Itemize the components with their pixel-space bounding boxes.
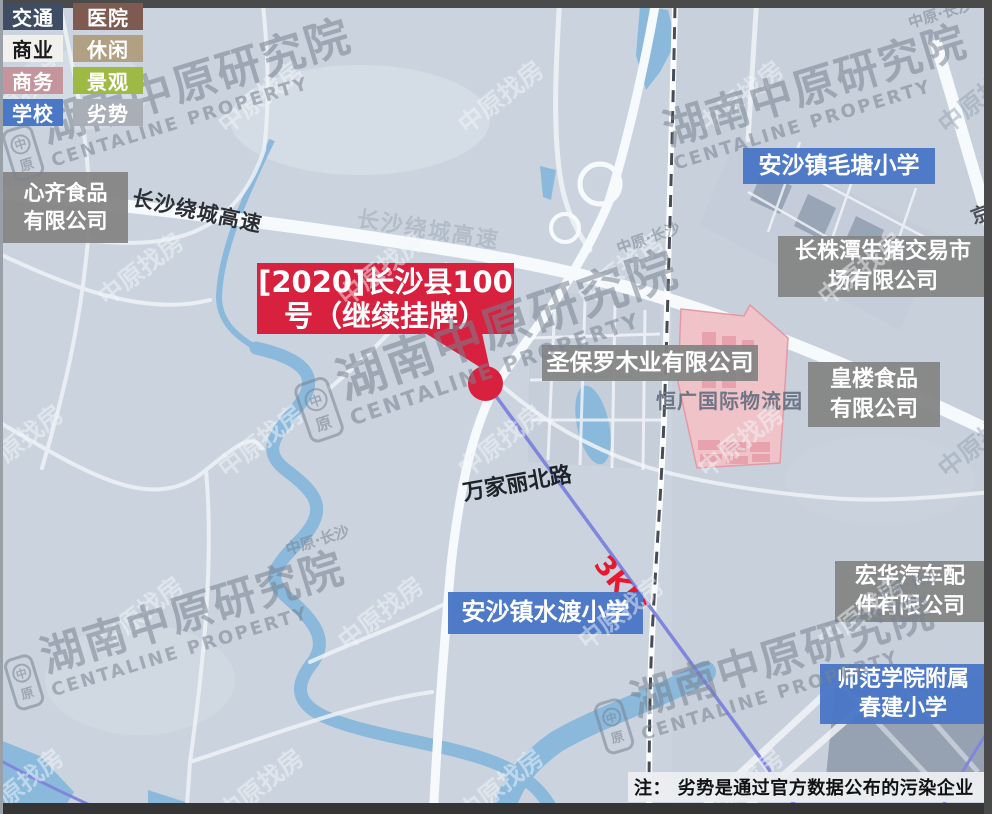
poi-shuidu-school: 安沙镇水渡小学 [448, 592, 643, 634]
legend: 交通 医院 商业 休闲 商务 景观 学校 劣势 [3, 3, 143, 126]
poi-maotang-school: 安沙镇毛塘小学 [743, 148, 935, 184]
logistics-park-area [678, 305, 788, 468]
footnote: 注： 劣势是通过官方数据公布的污染企业 [628, 772, 984, 802]
poi-huanglou-food: 皇楼食品 有限公司 [808, 362, 940, 427]
parcel-callout: [2020]长沙县100 号（继续挂牌） [257, 263, 514, 334]
map-screenshot: 中原找房 中原找房 中原找房 中原找房 中原找房 中原找房 中原找房 中原找房 … [0, 0, 992, 814]
poi-xinqi-food: 心齐食品 有限公司 [3, 172, 128, 243]
poi-shengbaoluo-wood: 圣保罗木业有限公司 [542, 345, 758, 381]
frame-bottom [0, 803, 992, 814]
legend-leisure: 休闲 [73, 35, 143, 62]
poi-changzhutan-market: 长株潭生猪交易市 场有限公司 [778, 236, 988, 297]
legend-transport: 交通 [3, 3, 63, 30]
poi-shifan-school: 师范学院附属 春建小学 [820, 664, 986, 724]
legend-business: 商务 [3, 67, 63, 94]
callout-tail [420, 331, 500, 377]
frame-top [0, 0, 992, 8]
legend-drawback: 劣势 [73, 99, 143, 126]
legend-commerce: 商业 [3, 35, 63, 62]
legend-hospital: 医院 [73, 3, 143, 30]
poi-honghua-autoparts: 宏华汽车配 件有限公司 [835, 561, 985, 622]
legend-landscape: 景观 [73, 67, 143, 94]
frame-right [984, 0, 992, 814]
legend-school: 学校 [3, 99, 63, 126]
